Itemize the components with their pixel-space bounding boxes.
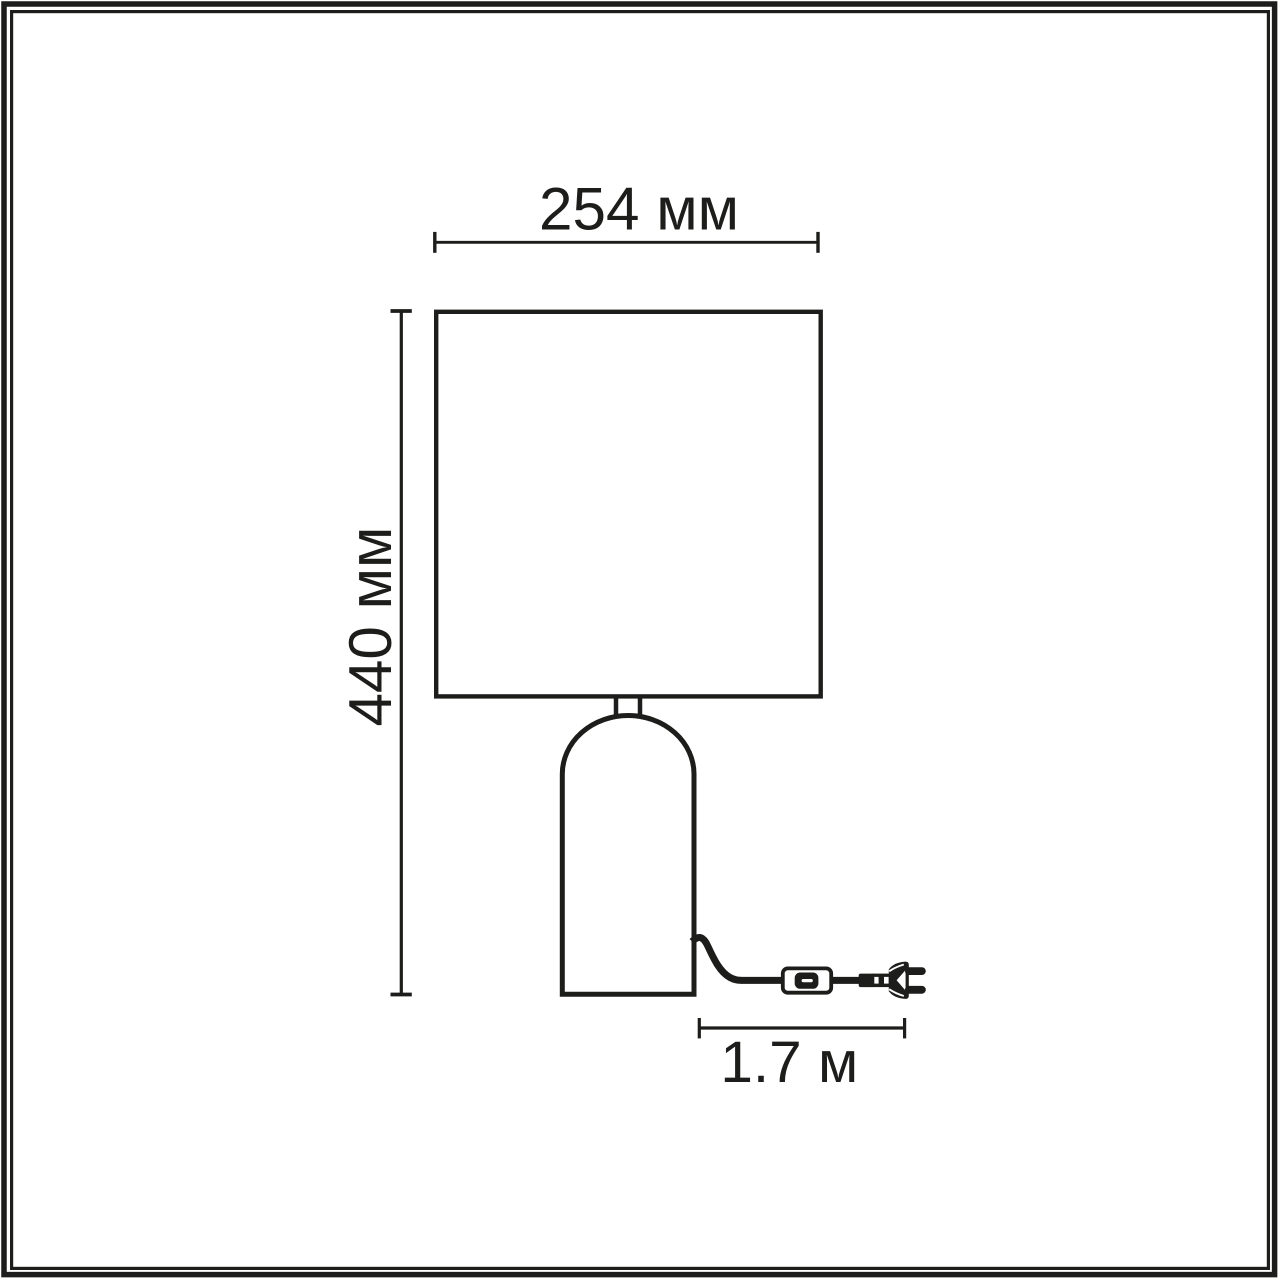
svg-text:1.7 м: 1.7 м bbox=[720, 1030, 858, 1095]
svg-text:440 мм: 440 мм bbox=[337, 527, 404, 727]
svg-text:254 мм: 254 мм bbox=[539, 175, 739, 242]
